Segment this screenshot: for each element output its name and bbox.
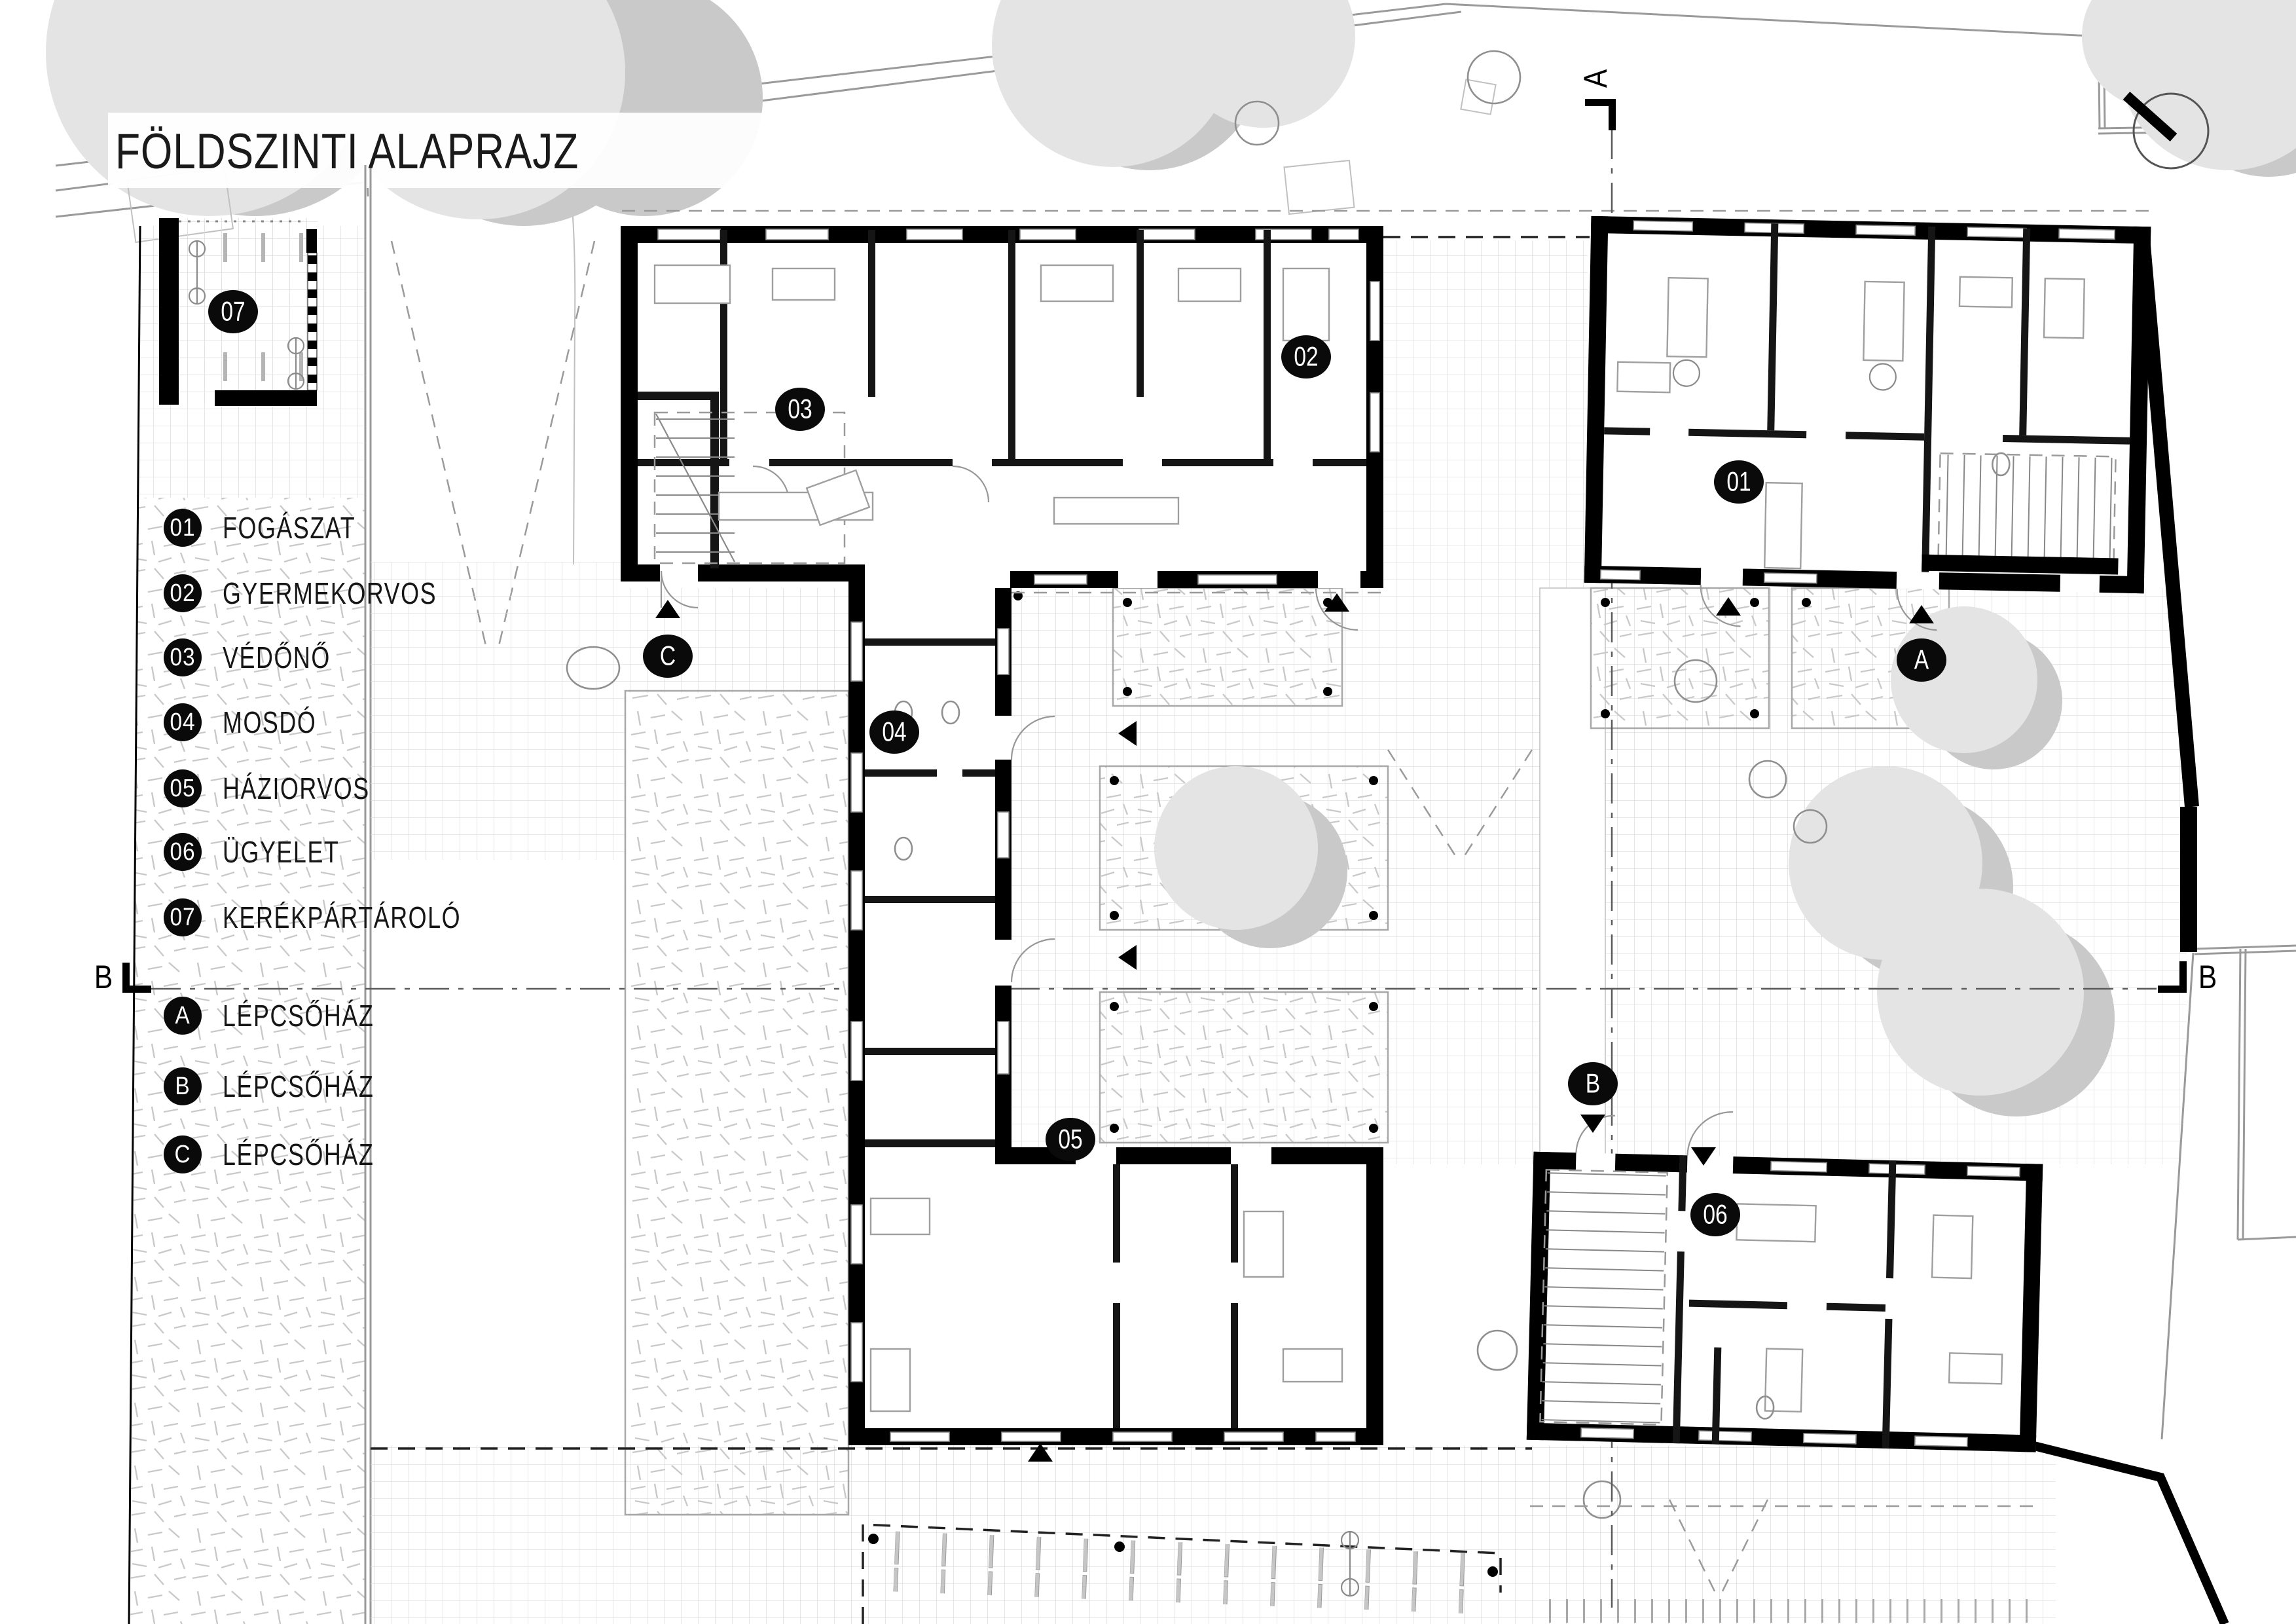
legend-badge: B xyxy=(164,1067,202,1105)
section-marker-a-top: A xyxy=(1577,69,1616,130)
bike-rack xyxy=(261,352,265,381)
legend-label: VÉDŐNŐ xyxy=(223,640,331,675)
legend-label: MOSDÓ xyxy=(223,705,316,740)
floor-plan-sheet: A B B 07 03 02 01 04 C A B 05 06 F xyxy=(0,0,2296,1624)
legend-label: ÜGYELET xyxy=(223,834,339,870)
legend-badge: 07 xyxy=(164,898,202,936)
legend-item-02: 02 GYERMEKORVOS xyxy=(161,574,497,613)
legend-badge: C xyxy=(164,1135,202,1173)
legend-badge: 04 xyxy=(164,703,202,741)
legend-badge: 01 xyxy=(164,509,202,547)
legend-label: LÉPCSŐHÁZ xyxy=(223,1137,374,1172)
plan-badge-03: 03 xyxy=(775,388,825,431)
plan-badge-06: 06 xyxy=(1690,1193,1740,1236)
bike-rack xyxy=(223,352,227,381)
staircase-a xyxy=(1922,453,2120,575)
planted-bed xyxy=(1113,588,1342,706)
legend-label: LÉPCSŐHÁZ xyxy=(223,1069,374,1104)
section-label-b: B xyxy=(94,959,113,995)
dental-chair xyxy=(1667,278,1707,357)
svg-text:01: 01 xyxy=(1726,467,1751,497)
legend-item-b: B LÉPCSŐHÁZ xyxy=(161,1067,417,1106)
legend-badge: A xyxy=(164,997,202,1035)
svg-text:05: 05 xyxy=(1058,1124,1082,1154)
bike-rack xyxy=(261,233,265,262)
building-right-01 xyxy=(1584,216,2151,634)
section-label-a: A xyxy=(1577,69,1614,88)
legend-label: LÉPCSŐHÁZ xyxy=(223,998,374,1033)
legend-item-06: 06 ÜGYELET xyxy=(161,832,373,872)
plan-badge-02: 02 xyxy=(1281,335,1331,378)
legend-badge: 02 xyxy=(164,574,202,612)
plan-badge-a: A xyxy=(1897,638,1946,682)
legend-item-01: 01 FOGÁSZAT xyxy=(161,508,393,547)
plan-badge-b: B xyxy=(1568,1062,1618,1105)
legend-badge: 05 xyxy=(164,769,202,807)
floor-plan-drawing: A B B 07 03 02 01 04 C A B 05 06 xyxy=(0,0,2296,1624)
legend-item-a: A LÉPCSŐHÁZ xyxy=(161,996,417,1035)
legend-item-03: 03 VÉDŐNŐ xyxy=(161,638,361,677)
legend-label: KERÉKPÁRTÁROLÓ xyxy=(223,900,461,935)
svg-text:07: 07 xyxy=(221,297,245,327)
section-label-b: B xyxy=(2198,959,2217,995)
svg-text:06: 06 xyxy=(1703,1200,1727,1230)
dental-chair xyxy=(1863,282,1904,361)
svg-text:A: A xyxy=(1914,645,1929,675)
svg-text:02: 02 xyxy=(1294,342,1318,372)
legend-label: GYERMEKORVOS xyxy=(223,576,437,611)
bike-rack xyxy=(223,233,227,262)
svg-text:04: 04 xyxy=(882,717,906,747)
fence-ticks xyxy=(1539,1599,2039,1624)
plan-badge-05: 05 xyxy=(1046,1118,1095,1161)
legend-item-04: 04 MOSDÓ xyxy=(161,703,343,742)
legend-label: FOGÁSZAT xyxy=(223,510,355,545)
plan-badge-07: 07 xyxy=(208,290,258,333)
legend-label: HÁZIORVOS xyxy=(223,771,370,806)
plan-badge-c: C xyxy=(643,635,693,678)
staircase-b xyxy=(1540,1170,1667,1424)
plan-badge-04: 04 xyxy=(869,710,919,754)
legend-badge: 06 xyxy=(164,833,202,871)
legend-item-07: 07 KERÉKPÁRTÁROLÓ xyxy=(161,898,528,937)
legend-item-c: C LÉPCSŐHÁZ xyxy=(161,1135,417,1174)
svg-text:C: C xyxy=(660,641,676,671)
planted-bed xyxy=(1100,992,1388,1143)
legend-badge: 03 xyxy=(164,638,202,676)
bike-rack xyxy=(299,233,303,262)
plan-badge-01: 01 xyxy=(1714,460,1764,504)
svg-text:B: B xyxy=(1586,1069,1600,1099)
planted-bed xyxy=(1591,588,1769,728)
svg-text:03: 03 xyxy=(788,394,812,424)
page-title: FÖLDSZINTI ALAPRAJZ xyxy=(115,123,579,180)
legend-item-05: 05 HÁZIORVOS xyxy=(161,769,411,808)
garden-lawn xyxy=(625,691,848,1515)
